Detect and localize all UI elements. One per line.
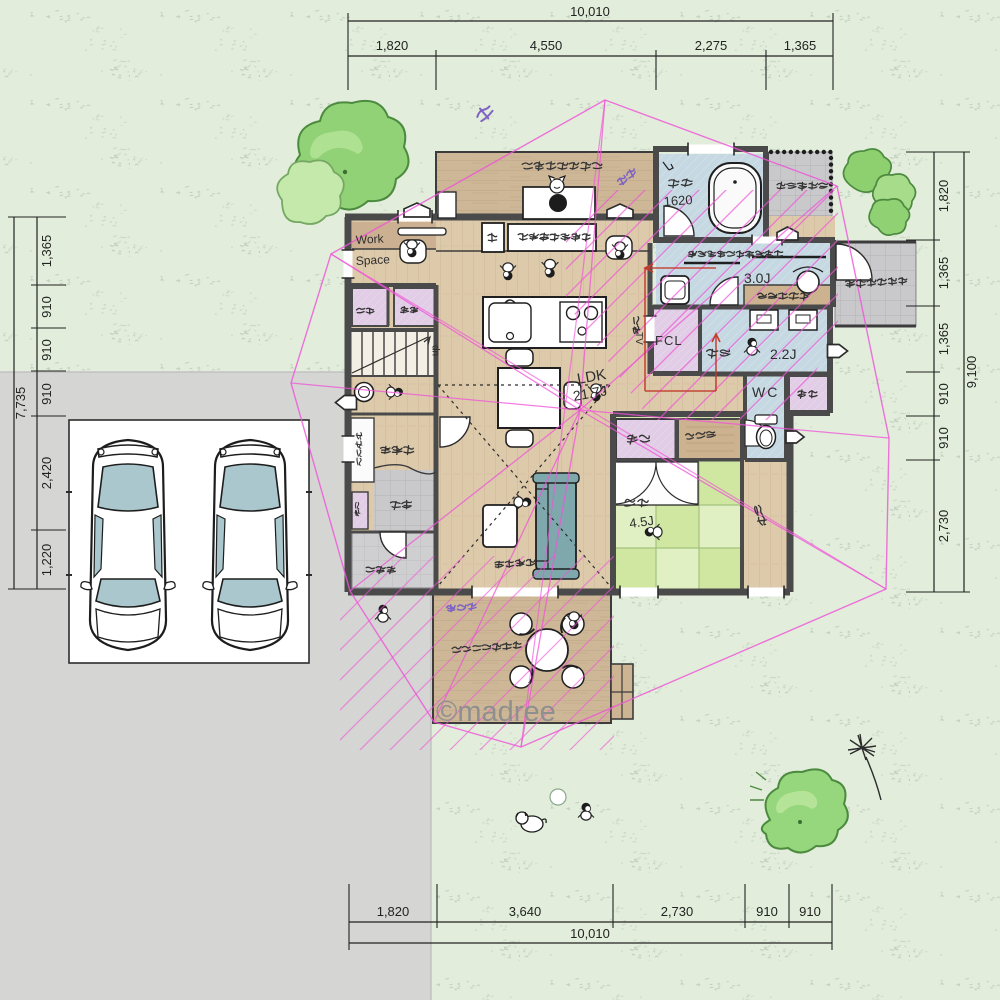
svg-text:10,010: 10,010 (570, 926, 610, 941)
svg-text:1,365: 1,365 (39, 235, 54, 268)
svg-text:WC: WC (752, 384, 779, 400)
svg-text:910: 910 (39, 296, 54, 318)
svg-text:910: 910 (39, 383, 54, 405)
svg-text:10,010: 10,010 (570, 4, 610, 19)
svg-text:910: 910 (936, 383, 951, 405)
svg-text:FCL: FCL (655, 333, 683, 348)
svg-text:2,730: 2,730 (661, 904, 694, 919)
svg-text:1,365: 1,365 (784, 38, 817, 53)
svg-text:1,220: 1,220 (39, 544, 54, 577)
svg-text:2,275: 2,275 (695, 38, 728, 53)
svg-text:Work: Work (355, 232, 384, 247)
svg-text:910: 910 (39, 339, 54, 361)
svg-text:1,365: 1,365 (936, 323, 951, 356)
svg-text:910: 910 (936, 427, 951, 449)
svg-text:7,735: 7,735 (13, 387, 28, 420)
svg-text:1,820: 1,820 (377, 904, 410, 919)
svg-text:3,640: 3,640 (509, 904, 542, 919)
svg-text:3.0J: 3.0J (744, 270, 770, 286)
svg-text:4,550: 4,550 (530, 38, 563, 53)
svg-text:1620: 1620 (663, 192, 693, 209)
svg-text:2,730: 2,730 (936, 510, 951, 543)
svg-text:2.2J: 2.2J (770, 346, 796, 362)
svg-text:1,820: 1,820 (936, 180, 951, 213)
svg-text:1,820: 1,820 (376, 38, 409, 53)
svg-text:2,420: 2,420 (39, 457, 54, 490)
svg-text:910: 910 (756, 904, 778, 919)
svg-text:TV: TV (633, 332, 644, 345)
svg-text:910: 910 (799, 904, 821, 919)
svg-text:1,365: 1,365 (936, 257, 951, 290)
svg-text:9,100: 9,100 (964, 356, 979, 389)
svg-text:up: up (430, 344, 441, 356)
svg-text:Space: Space (355, 252, 390, 268)
svg-text:©madree: ©madree (436, 696, 556, 728)
